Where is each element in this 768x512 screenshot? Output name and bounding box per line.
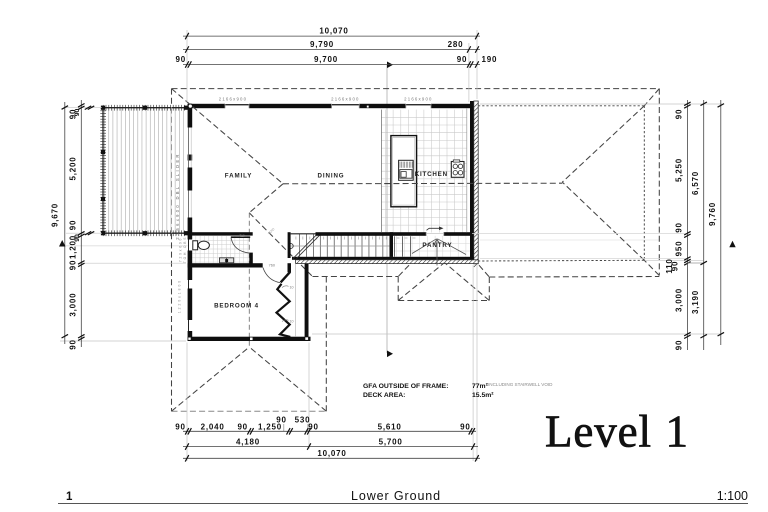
svg-text:710: 710 — [239, 234, 245, 238]
svg-text:90: 90 — [457, 55, 468, 64]
svg-text:3,000: 3,000 — [674, 288, 683, 312]
svg-text:5,700: 5,700 — [379, 437, 403, 446]
svg-text:90: 90 — [176, 55, 187, 64]
svg-text:Lower Ground: Lower Ground — [351, 489, 441, 503]
svg-text:15.5m²: 15.5m² — [472, 392, 494, 399]
svg-text:90: 90 — [674, 340, 683, 351]
svg-text:90: 90 — [69, 339, 78, 350]
svg-text:1220x1800: 1220x1800 — [178, 279, 182, 313]
svg-text:DECK AREA:: DECK AREA: — [363, 392, 405, 399]
svg-text:1,200: 1,200 — [69, 235, 78, 259]
svg-text:90: 90 — [69, 220, 78, 231]
svg-text:2166x900: 2166x900 — [404, 97, 432, 102]
svg-text:90: 90 — [175, 422, 186, 431]
svg-text:INCLUDING STAIRWELL VOID: INCLUDING STAIRWELL VOID — [488, 382, 553, 387]
svg-text:90: 90 — [276, 416, 287, 425]
svg-text:10,070: 10,070 — [319, 27, 348, 36]
svg-text:1: 1 — [66, 491, 73, 503]
svg-text:90: 90 — [674, 222, 683, 233]
svg-text:190: 190 — [482, 55, 498, 64]
svg-text:1: 1 — [666, 407, 688, 457]
svg-text:90: 90 — [674, 109, 683, 120]
svg-text:9,790: 9,790 — [310, 40, 334, 49]
svg-text:6,570: 6,570 — [691, 171, 700, 195]
svg-text:2166x900: 2166x900 — [219, 97, 247, 102]
svg-text:9,670: 9,670 — [51, 203, 60, 227]
svg-text:4,180: 4,180 — [236, 437, 260, 446]
svg-text:KITCHEN: KITCHEN — [415, 171, 448, 178]
svg-text:5,250: 5,250 — [674, 158, 683, 182]
svg-text:GFA OUTSIDE OF FRAME:: GFA OUTSIDE OF FRAME: — [363, 383, 448, 390]
svg-text:90: 90 — [237, 422, 248, 431]
svg-text:TGH OBS: TGH OBS — [183, 236, 187, 263]
svg-text:3,000: 3,000 — [69, 293, 78, 317]
svg-text:1:100: 1:100 — [717, 489, 748, 503]
svg-text:DINING: DINING — [317, 173, 344, 180]
svg-text:77m²: 77m² — [472, 383, 489, 390]
svg-text:90: 90 — [460, 422, 471, 431]
svg-text:Level: Level — [545, 407, 652, 457]
svg-text:90: 90 — [69, 109, 78, 120]
svg-text:3,190: 3,190 — [691, 290, 700, 314]
svg-text:2166x900 DBL SLIDER: 2166x900 DBL SLIDER — [175, 152, 180, 240]
svg-text:PANTRY: PANTRY — [422, 242, 452, 249]
svg-text:2166x900: 2166x900 — [331, 97, 359, 102]
svg-text:90: 90 — [69, 260, 78, 271]
svg-text:760: 760 — [269, 263, 275, 267]
svg-text:5,200: 5,200 — [69, 156, 78, 180]
svg-text:BEDROOM 4: BEDROOM 4 — [214, 303, 259, 310]
svg-text:10: 10 — [290, 319, 294, 323]
svg-text:90: 90 — [308, 422, 319, 431]
svg-text:10,070: 10,070 — [317, 449, 346, 458]
svg-text:110: 110 — [665, 258, 674, 273]
svg-text:2,040: 2,040 — [201, 422, 225, 431]
svg-text:10: 10 — [290, 285, 294, 289]
svg-text:280: 280 — [448, 40, 464, 49]
svg-text:9,700: 9,700 — [314, 55, 338, 64]
svg-text:950: 950 — [674, 241, 683, 257]
svg-text:5,610: 5,610 — [378, 422, 402, 431]
svg-text:9,760: 9,760 — [708, 202, 717, 226]
svg-text:FAMILY: FAMILY — [225, 173, 253, 180]
